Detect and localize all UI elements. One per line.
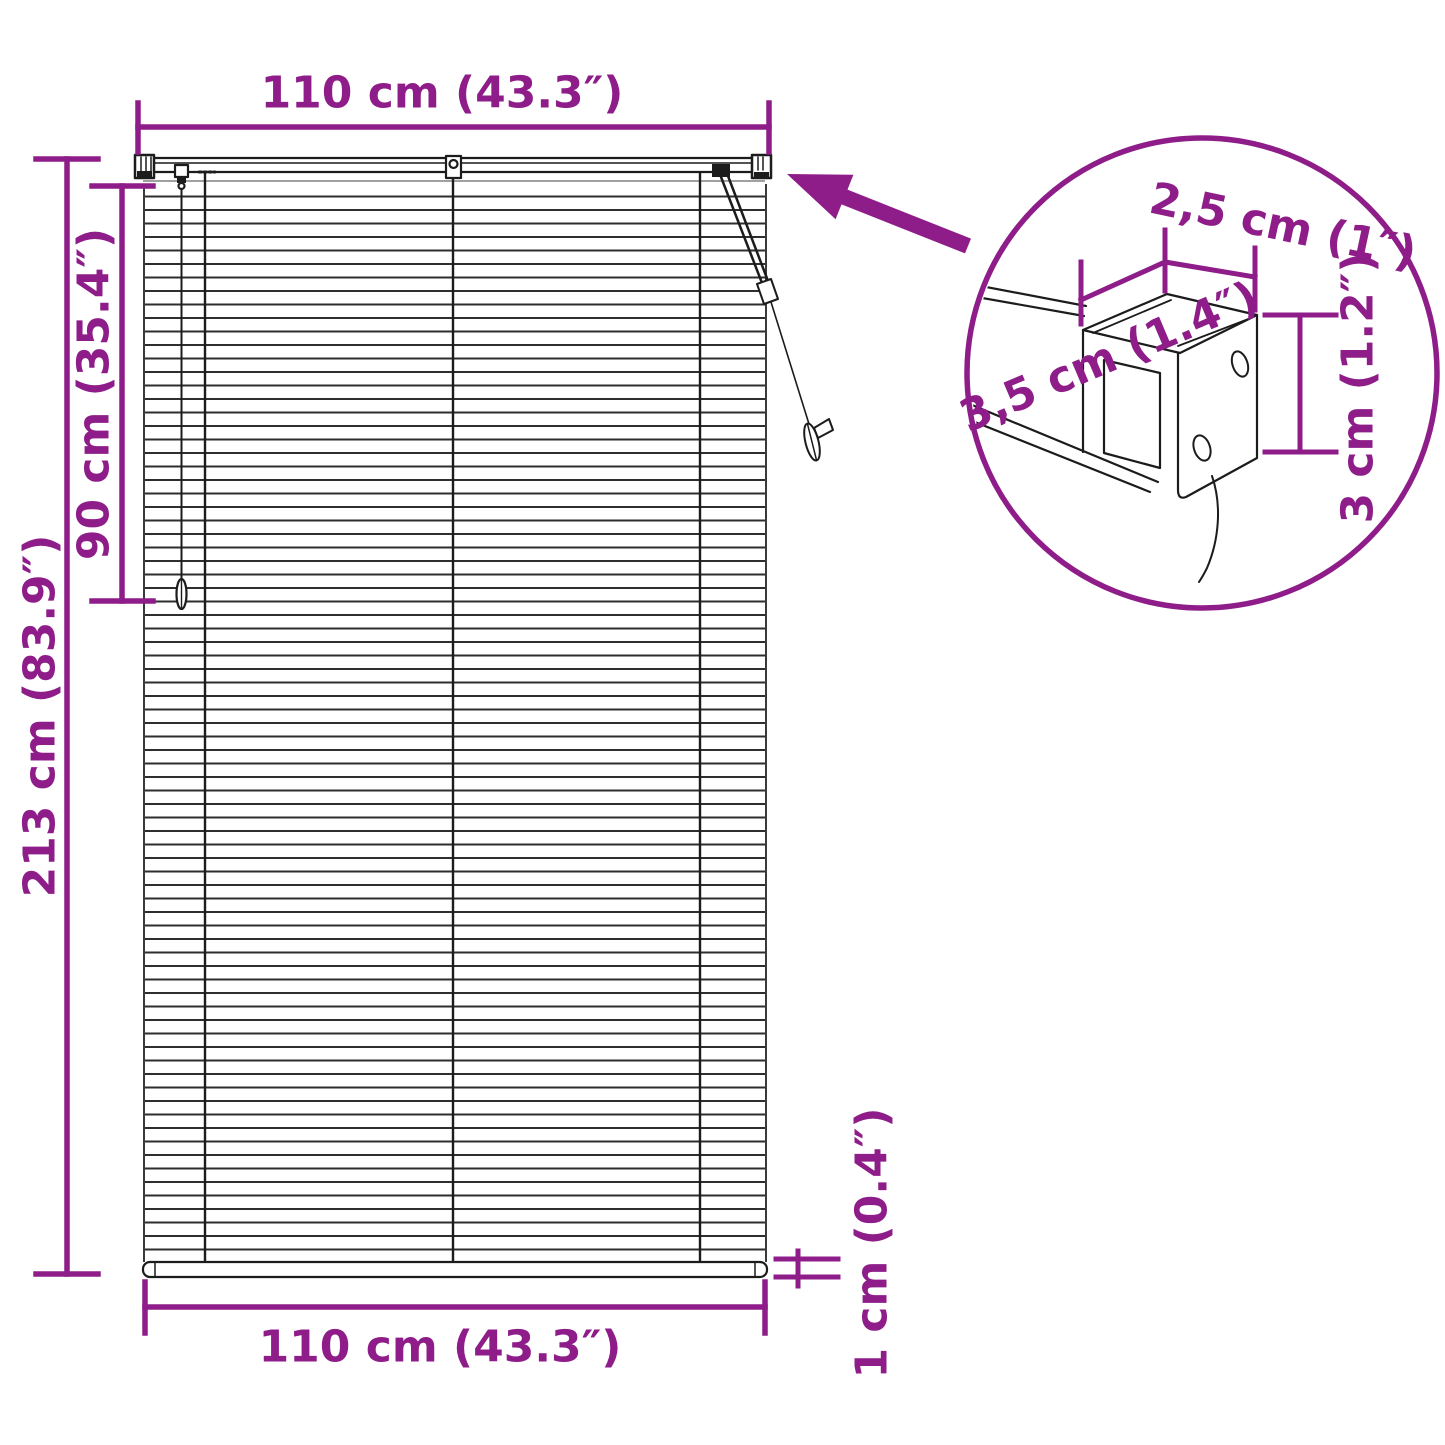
- pull-cord: [175, 165, 188, 609]
- dim-label-bottom-width: 110 cm (43.3″): [259, 1322, 622, 1373]
- dim-label-bracket-height: 3 cm (1.2″): [1333, 252, 1384, 523]
- dim-label-total-height: 213 cm (83.9″): [15, 535, 66, 898]
- blind-headrail: [135, 155, 771, 178]
- dim-label-top-width: 110 cm (43.3″): [261, 68, 624, 119]
- tilt-wand: [721, 176, 833, 462]
- blind-dimension-diagram: 110 cm (43.3″) 213 cm (83.9″) 90 cm (35.…: [0, 0, 1445, 1445]
- dim-rail-thickness: [776, 1251, 838, 1286]
- dim-label-cord-height: 90 cm (35.4″): [69, 228, 120, 560]
- ladder-cords: [205, 172, 700, 1262]
- blind-drawing: [135, 155, 833, 1277]
- zoom-arrow-icon: [787, 174, 971, 253]
- bottom-rail: [143, 1262, 767, 1277]
- dim-label-rail-thickness: 1 cm (0.4″): [847, 1107, 898, 1378]
